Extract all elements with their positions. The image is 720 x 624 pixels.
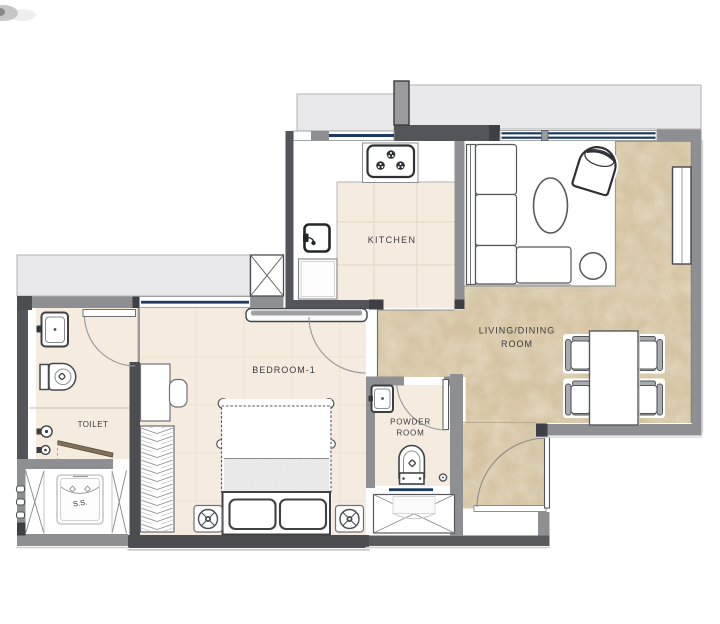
svg-text:ROOM: ROOM	[396, 429, 424, 438]
svg-text:KITCHEN: KITCHEN	[368, 235, 417, 245]
svg-text:ROOM: ROOM	[501, 339, 533, 349]
svg-text:LIVING/DINING: LIVING/DINING	[479, 326, 556, 336]
svg-text:BEDROOM-1: BEDROOM-1	[252, 365, 316, 375]
svg-text:TOILET: TOILET	[78, 420, 109, 429]
svg-text:POWDER: POWDER	[390, 418, 431, 427]
